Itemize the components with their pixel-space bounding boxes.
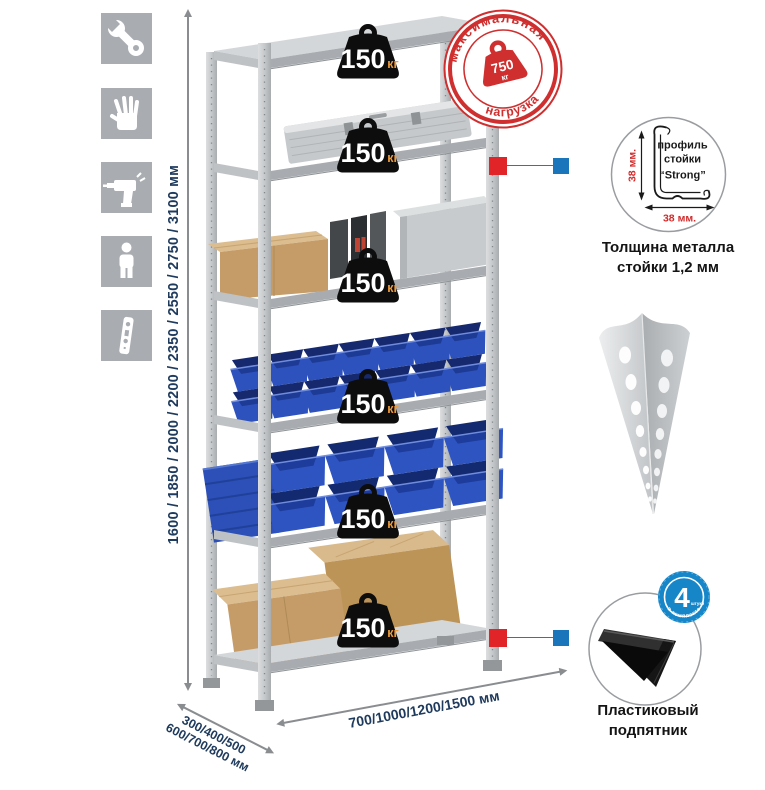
weight-badge: 150 кг (320, 116, 417, 179)
included-count-badge: 4 штуки в комплекте (658, 571, 710, 623)
rack-foot (437, 636, 454, 645)
svg-text:“Strong”: “Strong” (659, 170, 705, 182)
foot-caption-line2: подпятник (609, 722, 688, 739)
post-profile-detail: 38 мм. 38 мм. профиль стойки “Strong” (608, 114, 729, 240)
weight-badge: 150 кг (320, 591, 417, 654)
svg-text:4: 4 (674, 582, 690, 613)
weight-badge: 150 кг (320, 22, 417, 85)
svg-text:38 мм.: 38 мм. (663, 213, 696, 225)
foot-detail: 4 штуки в комплекте (580, 565, 725, 720)
svg-text:150: 150 (340, 44, 385, 74)
connector-blue-marker-top (553, 158, 569, 174)
connector-red-marker-top (489, 157, 507, 175)
wrench-icon (101, 13, 152, 64)
person-icon (101, 236, 152, 287)
svg-text:кг: кг (387, 151, 398, 165)
max-load-stamp: 750 кг максимальная нагрузка (440, 6, 566, 137)
post-photo (585, 300, 765, 535)
connector-line-bottom (507, 637, 553, 639)
svg-text:150: 150 (340, 138, 385, 168)
weight-badge: 150 кг (320, 482, 417, 545)
rack-foot (483, 660, 502, 671)
svg-text:штуки: штуки (691, 601, 705, 606)
svg-text:150: 150 (340, 504, 385, 534)
svg-text:кг: кг (387, 517, 398, 531)
rack-post-back-left (206, 52, 217, 682)
svg-text:кг: кг (387, 281, 398, 295)
svg-text:150: 150 (340, 268, 385, 298)
svg-text:кг: кг (387, 402, 398, 416)
svg-text:кг: кг (387, 57, 398, 71)
svg-text:профиль: профиль (657, 140, 707, 152)
profile-caption: Толщина металла стойки 1,2 мм (573, 238, 763, 277)
svg-text:кг: кг (387, 626, 398, 640)
height-dimension-label: 1600 / 1850 / 2000 / 2200 / 2350 / 2550 … (166, 165, 182, 544)
weight-badge: 150 кг (320, 246, 417, 309)
connector-red-marker-bottom (489, 629, 507, 647)
connector-line-top (507, 165, 553, 167)
svg-text:38 мм.: 38 мм. (627, 149, 639, 182)
svg-text:стойки: стойки (664, 154, 701, 166)
rack-foot (203, 678, 220, 688)
profile-caption-line1: Толщина металла (602, 239, 734, 256)
svg-text:150: 150 (340, 613, 385, 643)
height-dimension: 1600 / 1850 / 2000 / 2200 / 2350 / 2550 … (157, 50, 191, 660)
gloves-icon (101, 88, 152, 139)
connector-blue-marker-bottom (553, 630, 569, 646)
profile-caption-line2: стойки 1,2 мм (617, 259, 719, 276)
weight-badge: 150 кг (320, 367, 417, 430)
rack-foot (255, 700, 274, 711)
svg-text:150: 150 (340, 389, 385, 419)
drill-icon (101, 162, 152, 213)
rack-post-icon (101, 310, 152, 361)
